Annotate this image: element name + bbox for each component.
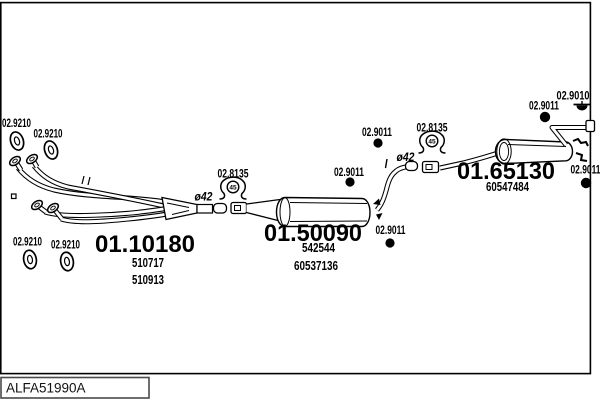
tail-pipe-tip	[586, 121, 595, 132]
oe-ref: 510913	[132, 273, 164, 287]
part-label-mount: 02.8135	[218, 167, 249, 181]
mount-bolt-mark: 45	[229, 184, 237, 191]
oe-ref: 60547484	[486, 180, 529, 194]
part-label-gasket: 02.9210	[51, 238, 80, 252]
rubber-ring-dot-icon	[540, 112, 550, 122]
rubber-ring-dot-icon	[373, 138, 382, 147]
part-label-gasket: 02.9210	[2, 116, 31, 130]
part-label-rubber-ring: 02.9011	[362, 125, 392, 139]
oe-ref: 510717	[132, 256, 164, 270]
pipe-diameter-note: ø42	[397, 152, 416, 164]
exhaust-diagram-page: 45 45 02.9210 02.9210 02.9210 02.9210 02…	[0, 0, 600, 400]
rubber-ring-dot-icon	[581, 178, 591, 188]
part-label-rubber-ring: 02.9011	[376, 223, 406, 237]
drawing-code: ALFA51990A	[6, 381, 86, 396]
part-label-gasket: 02.9210	[34, 127, 63, 141]
reference-square-marker	[12, 194, 17, 199]
part-label-gasket: 02.9210	[13, 235, 42, 249]
oe-ref: 60537136	[294, 259, 338, 273]
mount-bolt-mark: 45	[428, 138, 436, 145]
part-label-mount: 02.8135	[417, 121, 448, 135]
part-label-hook: 02.9010	[557, 89, 590, 103]
part-number-front-pipe: 01.10180	[95, 231, 195, 258]
pipe-diameter-note: ø42	[195, 192, 214, 204]
rubber-ring-dot-icon	[385, 238, 394, 247]
exhaust-diagram: 45 45 02.9210 02.9210 02.9210 02.9210 02…	[0, 0, 600, 400]
part-label-rubber-ring: 02.9011	[334, 165, 364, 179]
part-label-rubber-ring: 02.9011	[529, 99, 559, 113]
oe-ref: 542544	[302, 241, 335, 255]
part-label-rubber-ring: 02.9011	[571, 163, 600, 177]
